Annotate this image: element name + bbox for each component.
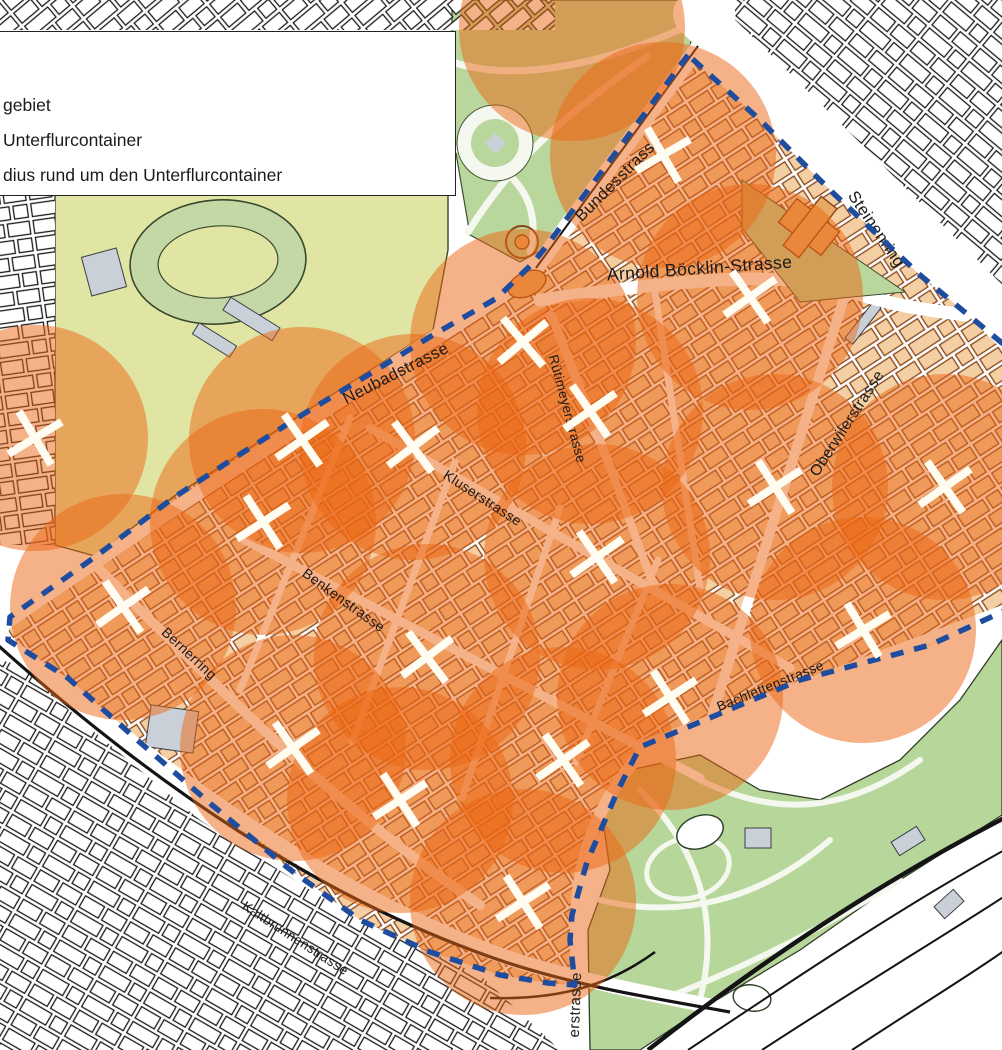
gray-building	[745, 828, 771, 848]
map-stage: BundesstrasseArnold Böcklin-StrasseStein…	[0, 0, 1002, 1050]
legend-container-label: Unterflurcontainer	[3, 123, 455, 158]
legend-box: gebiet Unterflurcontainer dius rund um d…	[0, 31, 456, 196]
legend-pilot-area-label: gebiet	[3, 88, 455, 123]
legend-radius-label: dius rund um den Unterflurcontainer	[3, 158, 455, 193]
